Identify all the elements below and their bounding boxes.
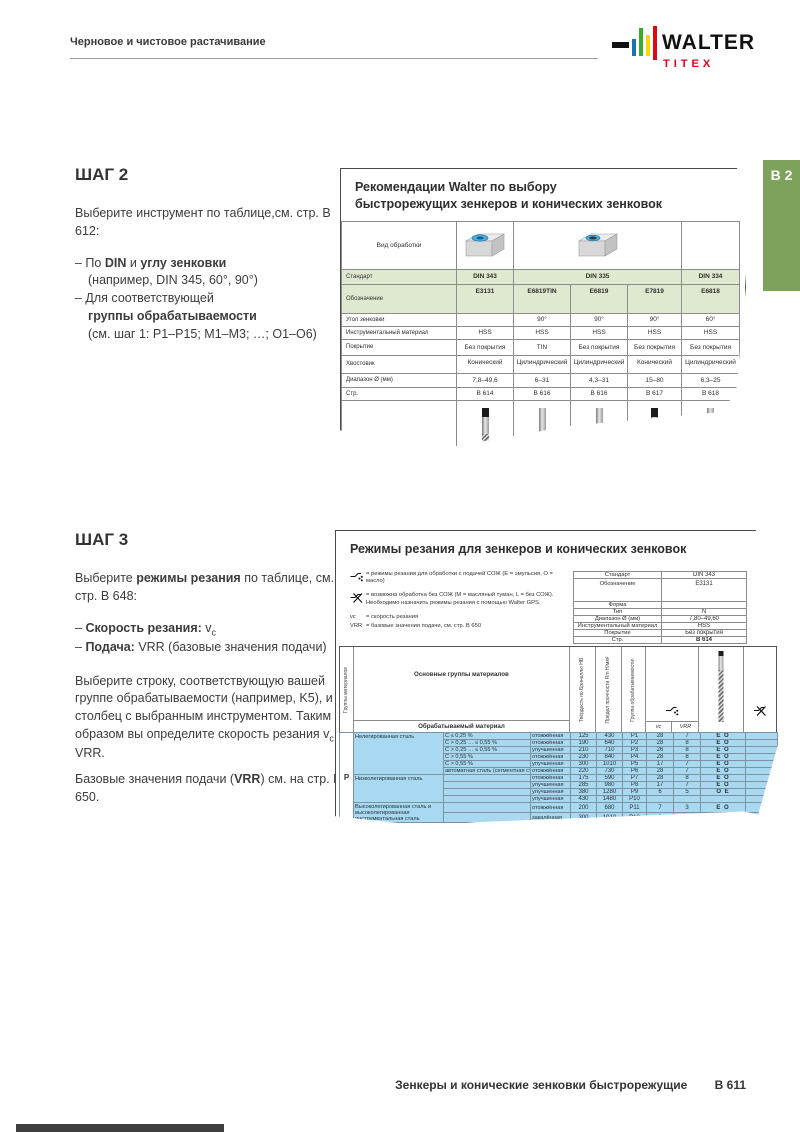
table-cell: P11: [623, 803, 647, 813]
row-label: Угол зенковки: [342, 313, 457, 326]
coolant-icon: [350, 572, 366, 585]
row-label: Инструментальный материал: [574, 623, 662, 630]
table-row: Угол зенковки90°90°90°60°: [342, 313, 740, 326]
table-cell: Цилиндрический: [571, 355, 628, 373]
step2-bullet1: – По DIN и углу зенковки: [75, 255, 347, 273]
table-row: Высоколегированная сталь и высоколегиров…: [340, 803, 778, 813]
table-cell: 220: [571, 768, 597, 775]
table-cell: B 617: [628, 387, 682, 400]
table-cell: [746, 789, 778, 796]
table-cell: DIN 335: [514, 269, 682, 284]
step2-block: ШАГ 2 Выберите инструмент по таблице,см.…: [75, 163, 347, 343]
table-cell: 680: [597, 803, 623, 813]
table-cell: E6819: [571, 284, 628, 313]
table-cell: P4: [623, 754, 647, 761]
table-cell: закалённая: [531, 813, 571, 823]
table-cell: E O: [701, 754, 746, 761]
step3-block: ШАГ 3 Выберите режимы резания по таблице…: [75, 528, 347, 814]
table-cell: HSS: [628, 326, 682, 339]
table-cell: 8: [674, 754, 701, 761]
table-cell: B 614: [662, 637, 747, 644]
tool-photo-e6819tin: [514, 400, 571, 479]
table-row: ОбозначениеE3131E6819TINE6819E7819E6818: [342, 284, 740, 313]
table-cell: 90°: [571, 313, 628, 326]
tool-photo-e7819: [628, 400, 682, 479]
table-row: PНелегированная стальC ≤ 0,25 %отожжённа…: [340, 733, 778, 740]
table-cell: [647, 796, 674, 803]
table-row: ОбозначениеE3131: [574, 579, 747, 602]
dry-machining-icon: [350, 593, 366, 606]
step2-bullet2-sub: (см. шаг 1: P1–P15; M1–M3; …; O1–O6): [75, 326, 347, 344]
tool-info-table: СтандартDIN 343ОбозначениеE3131ФормаТипN…: [573, 571, 747, 644]
logo-bar-green: [639, 28, 643, 56]
footer-title: Зенкеры и конические зенковки быстрорежу…: [395, 1078, 687, 1092]
table-cell: 380: [571, 789, 597, 796]
table-cell: E O: [701, 733, 746, 740]
table-cell: 8: [674, 747, 701, 754]
material-group-letter: P: [340, 733, 354, 823]
table-cell: [444, 782, 531, 789]
counterbore-3d-icon: [514, 221, 682, 269]
table-row: Стр.B 614B 616B 616B 617B 618: [342, 387, 740, 400]
table-cell: HSS: [662, 623, 747, 630]
table-row: Диапазон Ø (мм)7,8–49,66–314,3–3115–806,…: [342, 373, 740, 387]
row-label: Обозначение: [574, 579, 662, 602]
table-cell: Конический: [457, 355, 514, 373]
table-cell: E3131: [662, 579, 747, 602]
table2-title: Режимы резания для зенкеров и конических…: [336, 531, 799, 558]
table-cell: [457, 313, 514, 326]
header-rule: [70, 58, 598, 59]
table1-body: СтандартDIN 343DIN 335DIN 334Обозначение…: [342, 269, 740, 400]
table-cell: E7819: [628, 284, 682, 313]
table-cell: 6: [647, 789, 674, 796]
tool-image-header: [699, 647, 744, 732]
row-label: Тип: [574, 609, 662, 616]
material-groups-axis: Группы материалов: [340, 647, 354, 732]
dry-machining-icon: [754, 703, 767, 721]
machinability-matrix: Группы материалов Основные группы матери…: [339, 646, 777, 823]
table-cell: E6819TIN: [514, 284, 571, 313]
step2-intro: Выберите инструмент по таблице,см. стр. …: [75, 205, 347, 241]
table-cell: 8: [674, 775, 701, 782]
table-cell: DIN 343: [457, 269, 514, 284]
row-label: Диапазон Ø (мм): [574, 616, 662, 623]
table-row: Стр.B 614: [574, 637, 747, 644]
table-cell: 60°: [682, 313, 740, 326]
table-cell: B 616: [571, 387, 628, 400]
table-cell: [444, 796, 531, 803]
table-cell: 210: [571, 747, 597, 754]
logo-bar-red: [653, 26, 657, 60]
table-cell: [444, 813, 531, 823]
material-group-name: Высоколегированная сталь и высоколегиров…: [354, 803, 444, 823]
table-cell: P12: [623, 813, 647, 823]
table-cell: P8: [623, 782, 647, 789]
table-cell: 7: [674, 768, 701, 775]
table-cell: E O: [701, 813, 746, 823]
step3-paragraph2: Базовые значения подачи (VRR) см. на стр…: [75, 771, 347, 807]
table-cell: Цилиндрический: [514, 355, 571, 373]
row-label: Обозначение: [342, 284, 457, 313]
table-cell: улучшенная: [531, 789, 571, 796]
table-cell: улучшенная: [531, 747, 571, 754]
row-label: Форма: [574, 602, 662, 609]
coolant-icon: [665, 703, 678, 721]
table-cell: 285: [571, 782, 597, 789]
table-cell: 28: [647, 733, 674, 740]
table-cell: отожжённая: [531, 733, 571, 740]
table-cell: 3: [674, 803, 701, 813]
table-cell: HSS: [457, 326, 514, 339]
table-cell: HSS: [514, 326, 571, 339]
tool-info-body: СтандартDIN 343ОбозначениеE3131ФормаТипN…: [574, 572, 747, 644]
table-row: СтандартDIN 343DIN 335DIN 334: [342, 269, 740, 284]
row-label: Стандарт: [342, 269, 457, 284]
table-cell: 1010: [597, 813, 623, 823]
table-cell: 7: [674, 782, 701, 789]
row-label: Стр.: [342, 387, 457, 400]
section-tab-b2[interactable]: B 2: [763, 160, 800, 291]
table-cell: 980: [597, 782, 623, 789]
matrix-header: Группы материалов Основные группы матери…: [339, 646, 777, 732]
table-cell: [746, 803, 778, 813]
table-cell: 300: [571, 761, 597, 768]
material-column-header: Обрабатываемый материал: [354, 720, 569, 732]
table-row: ТипN: [574, 609, 747, 616]
table-cell: 430: [571, 796, 597, 803]
table-cell: E O: [701, 775, 746, 782]
table-cell: P7: [623, 775, 647, 782]
table-cell: P1: [623, 733, 647, 740]
table-row: Инструментальный материалHSS: [574, 623, 747, 630]
table-cell: 8: [674, 740, 701, 747]
row-label: Покрытие: [342, 339, 457, 355]
table-cell: Без покрытия: [662, 630, 747, 637]
step3-bullet1: – Скорость резания: vc: [75, 620, 347, 639]
table-cell: O E: [701, 789, 746, 796]
table-cell: 1010: [597, 761, 623, 768]
table-cell: Без покрытия: [682, 339, 740, 355]
legend-vc: vc= скорость резания: [350, 614, 565, 621]
table-cell: Цилиндрический: [682, 355, 740, 373]
table-cell: [746, 761, 778, 768]
table-row: ПокрытиеБез покрытия: [574, 630, 747, 637]
tool-photo-e6819: [571, 400, 628, 479]
table-cell: HSS: [682, 326, 740, 339]
table-cell: C > 0,55 %: [444, 761, 531, 768]
table-cell: 90°: [514, 313, 571, 326]
table-cell: 90°: [628, 313, 682, 326]
table-cell: 28: [647, 775, 674, 782]
table-cell: C > 0,25 … ≤ 0,55 %: [444, 740, 531, 747]
table-cell: отожжённая: [531, 740, 571, 747]
page-footer: Зенкеры и конические зенковки быстрорежу…: [0, 1078, 746, 1092]
table-cell: [746, 796, 778, 803]
table1-title: Рекомендации Walter по выбору быстрорежу…: [341, 169, 745, 213]
row-label: Диапазон Ø (мм): [342, 373, 457, 387]
table-cell: E O: [701, 747, 746, 754]
matrix-main-header: Основные группы материалов Обрабатываемы…: [354, 647, 570, 732]
step3-bullets: – Скорость резания: vc – Подача: VRR (ба…: [75, 620, 347, 657]
table-cell: [746, 754, 778, 761]
table-cell: C > 0,25 … ≤ 0,55 %: [444, 747, 531, 754]
table-row: СтандартDIN 343: [574, 572, 747, 579]
logo-bars: WALTER: [612, 26, 762, 56]
table-cell: Конический: [628, 355, 682, 373]
logo-bar-blue: [632, 39, 636, 56]
table-cell: [444, 789, 531, 796]
cutting-data-table: Режимы резания для зенкеров и конических…: [335, 530, 800, 836]
vc-vrr-subheader: vcVRR: [646, 721, 699, 732]
row-label: Стр.: [574, 637, 662, 644]
table-cell: улучшенная: [531, 796, 571, 803]
table-cell: [746, 813, 778, 823]
table-cell: [746, 775, 778, 782]
table-cell: 15–80: [628, 373, 682, 387]
table-cell: отожжённая: [531, 768, 571, 775]
table-cell: 26: [647, 747, 674, 754]
table-cell: 17: [647, 782, 674, 789]
row-label: Инструментальный материал: [342, 326, 457, 339]
table-cell: 28: [647, 754, 674, 761]
table-cell: 6–31: [514, 373, 571, 387]
table-cell: [746, 768, 778, 775]
material-group-name: Нелегированная сталь: [354, 733, 444, 775]
logo-bar-yellow: [646, 35, 650, 56]
table-cell: 840: [597, 754, 623, 761]
machinability-table-body: PНелегированная стальC ≤ 0,25 %отожжённа…: [340, 733, 778, 823]
brand-sub: TITEX: [663, 58, 762, 70]
table-cell: автоматная сталь (сегментная стружка): [444, 768, 531, 775]
table-row: ХвостовикКоническийЦилиндрическийЦилиндр…: [342, 355, 740, 373]
table-cell: E O: [701, 803, 746, 813]
table-cell: отожжённая: [531, 754, 571, 761]
dry-column-header: [744, 647, 776, 732]
step2-bullet2: – Для соответствующей: [75, 290, 347, 308]
table-cell: P2: [623, 740, 647, 747]
table-cell: DIN 343: [662, 572, 747, 579]
table2-legend: = режимы резания для обработки с подачей…: [350, 571, 565, 632]
table-cell: DIN 334: [682, 269, 740, 284]
table-cell: улучшенная: [531, 782, 571, 789]
legend-coolant: = режимы резания для обработки с подачей…: [350, 571, 565, 585]
table-cell: Без покрытия: [628, 339, 682, 355]
table-row: Инструментальный материалHSSHSSHSSHSSHSS: [342, 326, 740, 339]
table-cell: 590: [597, 775, 623, 782]
table-cell: [701, 796, 746, 803]
table-cell: E O: [701, 740, 746, 747]
table-cell: 1480: [597, 796, 623, 803]
tool-photo-header: [719, 651, 724, 722]
table-cell: 17: [647, 761, 674, 768]
strength-header: Предел прочности Rm Н/мм²: [596, 647, 622, 732]
table1: Вид обработки: [341, 221, 740, 480]
logo-dash: [612, 42, 629, 48]
machinability-group-header: Группа обрабатываемости¹: [622, 647, 646, 732]
table-cell: B 616: [514, 387, 571, 400]
table-cell: 230: [571, 754, 597, 761]
table-cell: 125: [571, 733, 597, 740]
table-cell: 710: [597, 747, 623, 754]
tool-column-header: vcVRR: [646, 647, 700, 732]
table-cell: P5: [623, 761, 647, 768]
table-cell: 7: [674, 761, 701, 768]
machining-type-label: Вид обработки: [342, 221, 457, 269]
table-cell: [662, 602, 747, 609]
table-cell: [746, 782, 778, 789]
row-label: Хвостовик: [342, 355, 457, 373]
table-cell: 300: [571, 813, 597, 823]
footer-page-number: B 611: [715, 1078, 746, 1092]
table-cell: [746, 747, 778, 754]
tool-photo-e3131: [457, 400, 514, 479]
table-cell: 4: [674, 813, 701, 823]
page-header-text: Черновое и чистовое растачивание: [70, 36, 266, 48]
table-cell: 4,3–31: [571, 373, 628, 387]
step3-title: ШАГ 3: [75, 528, 347, 552]
table-cell: B 614: [457, 387, 514, 400]
table-cell: отожжённая: [531, 775, 571, 782]
table-cell: C > 0,55 %: [444, 754, 531, 761]
table-cell: [444, 803, 531, 813]
hardness-header: Твёрдость по Бринеллю HB: [570, 647, 596, 732]
machinability-table: PНелегированная стальC ≤ 0,25 %отожжённа…: [339, 732, 778, 823]
table-cell: E O: [701, 782, 746, 789]
table-cell: B 618: [682, 387, 740, 400]
step3-intro: Выберите режимы резания по таблице, см. …: [75, 570, 347, 606]
table-cell: HSS: [571, 326, 628, 339]
table-cell: TIN: [514, 339, 571, 355]
tool-selection-table: Рекомендации Walter по выбору быстрорежу…: [340, 168, 746, 466]
table-cell: 175: [571, 775, 597, 782]
table-cell: 28: [647, 768, 674, 775]
table-cell: E O: [701, 761, 746, 768]
table-cell: 730: [597, 768, 623, 775]
step2-title: ШАГ 2: [75, 163, 347, 187]
row-label: Стандарт: [574, 572, 662, 579]
table-row: Диапазон Ø (мм)7,80–49,60: [574, 616, 747, 623]
table-cell: [746, 740, 778, 747]
table-cell: 7: [674, 733, 701, 740]
table-cell: [444, 775, 531, 782]
step2-bullet1-sub: (например, DIN 345, 60°, 90°): [75, 272, 347, 290]
table-cell: P10: [623, 796, 647, 803]
scan-edge-artifact: [16, 1124, 224, 1132]
brand-word: WALTER: [662, 30, 755, 56]
table-cell: 6: [647, 813, 674, 823]
table-cell: C ≤ 0,25 %: [444, 733, 531, 740]
table-cell: N: [662, 609, 747, 616]
table-cell: 430: [597, 733, 623, 740]
table-row: Низколегированная стальотожжённая175590P…: [340, 775, 778, 782]
table-cell: P9: [623, 789, 647, 796]
table-cell: 7: [647, 803, 674, 813]
table-cell: 640: [597, 740, 623, 747]
legend-vrr: VRR= базовые значения подачи, см. стр. B…: [350, 623, 565, 630]
table-cell: Без покрытия: [457, 339, 514, 355]
step3-bullet2: – Подача: VRR (базовые значения подачи): [75, 639, 347, 657]
table-cell: 28: [647, 740, 674, 747]
tool-photo-e6818: [682, 400, 740, 479]
catalog-page: Черновое и чистовое растачивание WALTER …: [0, 0, 800, 1132]
table-cell: E6818: [682, 284, 740, 313]
material-group-name: Низколегированная сталь: [354, 775, 444, 803]
step3-paragraph1: Выберите строку, соответствующую вашей г…: [75, 673, 347, 763]
table-cell: 5: [674, 789, 701, 796]
table-cell: 7,8–49,6: [457, 373, 514, 387]
table-cell: [674, 796, 701, 803]
row-label: Покрытие: [574, 630, 662, 637]
table-cell: E3131: [457, 284, 514, 313]
walter-titex-logo: WALTER TITEX: [612, 26, 762, 78]
table-cell: 7,80–49,60: [662, 616, 747, 623]
step2-bullets: – По DIN и углу зенковки (например, DIN …: [75, 255, 347, 344]
table-cell: P6: [623, 768, 647, 775]
legend-dry: = возможна обработка без СОЖ (M = маслян…: [350, 592, 565, 606]
table-cell: [746, 733, 778, 740]
table-cell: 1280: [597, 789, 623, 796]
table-cell: P3: [623, 747, 647, 754]
table-cell: улучшенная: [531, 761, 571, 768]
countersink-3d-icon: [457, 221, 514, 269]
step2-bullet2-bold: группы обрабатываемости: [75, 308, 347, 326]
table-cell: 190: [571, 740, 597, 747]
table-cell: 200: [571, 803, 597, 813]
table-row: ПокрытиеБез покрытияTINБез покрытияБез п…: [342, 339, 740, 355]
table-cell: 6,3–25: [682, 373, 740, 387]
table-cell: E O: [701, 768, 746, 775]
table-row: Форма: [574, 602, 747, 609]
table-cell: Без покрытия: [571, 339, 628, 355]
table-cell: отожжённая: [531, 803, 571, 813]
